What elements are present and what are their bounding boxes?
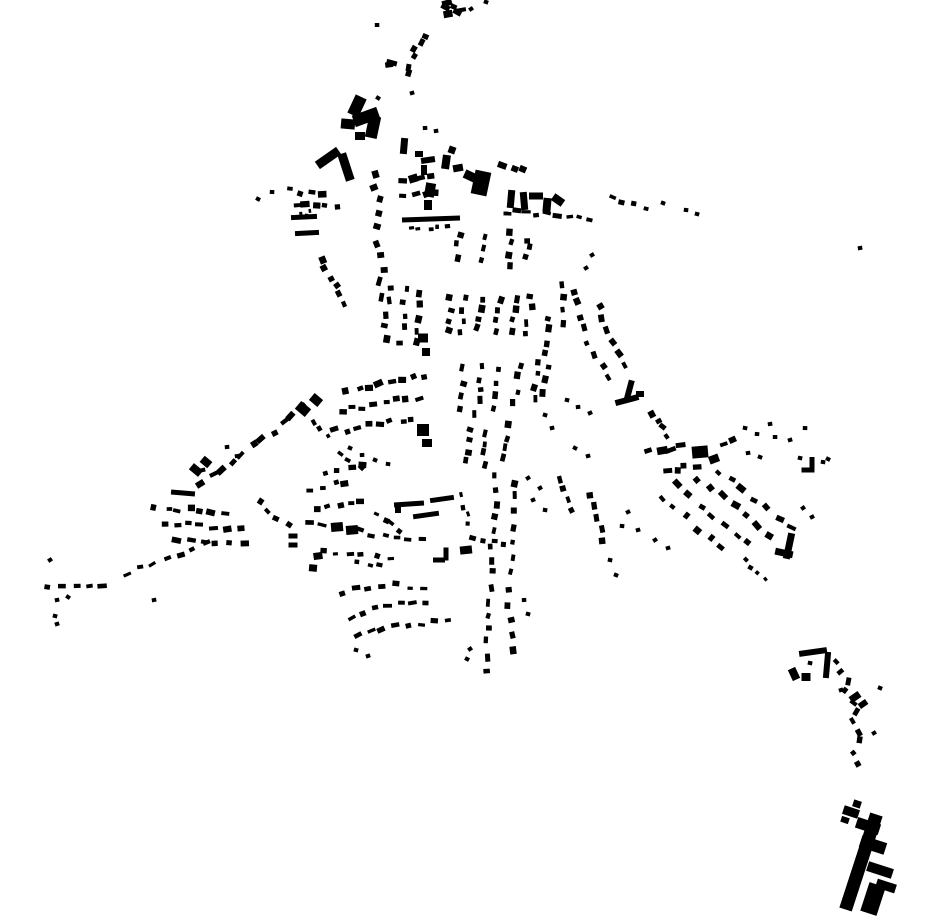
building-footprint <box>583 265 589 271</box>
building-footprint <box>576 405 581 409</box>
building-footprint <box>209 526 218 531</box>
building-footprint <box>560 294 567 301</box>
building-footprint <box>399 299 405 305</box>
building-footprint <box>423 126 428 130</box>
building-footprint <box>605 374 612 382</box>
building-footprint <box>466 511 470 517</box>
building-footprint <box>466 521 470 525</box>
building-footprint <box>444 548 449 561</box>
building-footprint <box>355 132 365 140</box>
building-footprint <box>505 251 513 259</box>
building-footprint <box>503 212 511 216</box>
building-footprint <box>478 387 484 392</box>
building-footprint <box>422 439 432 447</box>
building-footprint <box>728 436 737 444</box>
building-footprint <box>488 544 493 550</box>
building-footprint <box>388 379 397 385</box>
building-footprint <box>564 398 569 403</box>
building-footprint <box>858 699 869 709</box>
building-footprint <box>373 223 381 231</box>
building-footprint <box>482 234 487 241</box>
building-footprint <box>459 492 463 497</box>
building-footprint <box>402 323 407 330</box>
building-footprint <box>518 362 524 369</box>
building-footprint <box>195 522 203 526</box>
building-footprint <box>663 433 669 440</box>
building-footprint <box>462 318 466 324</box>
building-footprint <box>586 492 593 499</box>
building-footprint <box>318 255 327 264</box>
building-footprint <box>457 231 465 238</box>
building-footprint <box>480 538 486 544</box>
building-footprint <box>357 385 364 391</box>
building-footprint <box>511 507 517 513</box>
building-footprint <box>411 52 418 59</box>
building-footprint <box>718 490 728 500</box>
building-footprint <box>463 457 469 464</box>
building-footprint <box>321 203 327 208</box>
building-footprint <box>493 487 499 493</box>
building-footprint <box>418 623 425 627</box>
building-footprint <box>693 476 701 484</box>
building-footprint <box>97 583 107 588</box>
building-footprint <box>353 648 358 653</box>
building-footprint <box>415 151 423 157</box>
building-footprint <box>507 262 513 269</box>
building-footprint <box>347 445 353 450</box>
building-footprint <box>500 453 506 462</box>
building-footprint <box>552 213 562 219</box>
building-footprint <box>840 816 849 824</box>
building-footprint <box>341 118 356 129</box>
building-footprint <box>414 315 422 324</box>
building-footprint <box>675 442 685 448</box>
building-footprint <box>636 391 644 397</box>
building-footprint <box>491 527 496 534</box>
building-footprint <box>497 161 508 170</box>
building-footprint <box>466 437 473 443</box>
building-footprint <box>369 401 377 407</box>
building-footprint <box>523 331 528 336</box>
building-footprint <box>533 213 539 218</box>
building-footprint <box>527 243 533 250</box>
building-footprint <box>205 508 215 516</box>
building-footprint <box>383 311 389 319</box>
building-footprint <box>398 377 406 383</box>
building-footprint <box>542 198 551 213</box>
building-footprint <box>320 486 326 490</box>
building-footprint-map <box>0 0 930 924</box>
building-footprint <box>496 367 501 372</box>
building-footprint <box>421 374 427 380</box>
building-footprint <box>660 200 666 205</box>
building-footprint <box>52 613 57 618</box>
building-footprint <box>434 129 439 134</box>
building-footprint <box>596 302 605 310</box>
building-footprint <box>427 173 435 180</box>
building-footprint <box>271 429 279 437</box>
building-footprint <box>613 572 619 577</box>
building-footprint <box>577 314 584 321</box>
building-footprint <box>315 147 341 169</box>
building-footprint <box>599 537 606 544</box>
building-footprint <box>320 264 329 272</box>
building-footprint <box>445 318 452 325</box>
building-footprint <box>494 381 499 386</box>
building-footprint <box>358 407 365 411</box>
building-footprint <box>378 584 386 589</box>
building-footprint <box>533 395 537 402</box>
building-footprint <box>568 507 575 514</box>
building-footprint <box>502 443 507 451</box>
building-footprint <box>295 230 319 236</box>
building-footprint <box>367 533 375 539</box>
map-canvas <box>0 0 930 924</box>
building-footprint <box>586 217 593 222</box>
building-footprint <box>493 317 499 324</box>
building-footprint <box>337 450 344 456</box>
building-footprint <box>680 463 686 469</box>
building-footprint <box>340 480 349 487</box>
building-footprint <box>200 456 213 469</box>
building-footprint <box>371 170 379 179</box>
building-footprint <box>337 152 354 181</box>
building-footprint <box>435 225 439 229</box>
building-footprint <box>514 295 520 304</box>
building-footprint <box>757 454 763 459</box>
building-footprint <box>542 412 548 417</box>
building-footprint <box>512 305 519 313</box>
building-footprint <box>460 505 465 511</box>
building-footprint <box>375 95 381 101</box>
building-footprint <box>559 281 564 288</box>
building-footprint <box>742 426 747 431</box>
building-footprint <box>187 537 196 543</box>
building-footprint <box>809 514 815 520</box>
building-footprint <box>810 457 815 469</box>
building-footprint <box>559 485 566 492</box>
building-footprint <box>308 209 311 213</box>
building-footprint <box>378 293 384 302</box>
building-footprint <box>398 601 405 605</box>
building-footprint <box>47 557 53 563</box>
building-footprint <box>510 399 515 406</box>
building-footprint <box>800 505 806 511</box>
building-footprint <box>333 282 341 290</box>
building-footprint <box>352 585 361 591</box>
building-footprint <box>504 435 510 443</box>
building-footprint <box>365 421 372 427</box>
building-footprint <box>530 497 536 502</box>
building-footprint <box>716 543 725 551</box>
building-footprint <box>694 212 699 217</box>
building-footprint <box>802 673 811 681</box>
building-footprint <box>413 338 421 347</box>
building-footprint <box>408 417 414 423</box>
building-footprint <box>430 189 439 196</box>
building-footprint <box>489 557 494 564</box>
building-footprint <box>424 200 432 210</box>
building-footprint <box>698 503 706 510</box>
building-footprint <box>339 409 347 415</box>
building-footprint <box>484 636 489 643</box>
building-footprint <box>369 183 378 192</box>
building-footprint <box>417 175 425 181</box>
building-footprint <box>400 138 408 155</box>
building-footprint <box>755 432 760 436</box>
building-footprint <box>402 215 460 222</box>
building-footprint <box>348 405 355 409</box>
building-footprint <box>614 348 624 358</box>
building-footprint <box>413 511 439 520</box>
building-footprint <box>587 410 593 415</box>
building-footprint <box>44 584 50 590</box>
building-footprint <box>509 316 515 322</box>
building-footprint <box>375 23 380 27</box>
building-footprint <box>334 468 339 473</box>
building-footprint <box>448 146 457 155</box>
building-footprint <box>504 420 512 428</box>
building-footprint <box>849 717 856 725</box>
building-footprint <box>860 882 885 916</box>
building-footprint <box>786 524 796 532</box>
building-footprint <box>573 297 582 306</box>
building-footprint <box>750 497 758 504</box>
building-footprint <box>576 215 582 220</box>
building-footprint <box>375 210 383 217</box>
building-footprint <box>162 521 169 526</box>
building-footprint <box>381 323 389 329</box>
building-footprint <box>367 627 376 633</box>
building-footprint <box>482 429 488 437</box>
building-footprint <box>526 293 533 299</box>
building-footprint <box>599 525 605 533</box>
building-footprint <box>58 584 66 589</box>
building-footprint <box>416 300 423 307</box>
building-footprint <box>512 207 521 213</box>
building-footprint <box>478 257 484 263</box>
building-footprint <box>459 307 464 314</box>
building-footprint <box>507 617 515 624</box>
building-footprint <box>123 571 132 577</box>
building-footprint <box>419 537 426 541</box>
building-footprint <box>480 297 485 303</box>
building-footprint <box>510 539 515 544</box>
building-footprint <box>174 523 181 528</box>
building-footprint <box>384 400 390 404</box>
building-footprint <box>715 469 722 476</box>
building-footprint <box>372 457 378 462</box>
building-footprint <box>445 326 453 334</box>
building-footprint <box>684 208 689 212</box>
building-footprint <box>241 540 250 546</box>
building-footprint <box>383 533 390 538</box>
building-footprint <box>675 467 681 474</box>
building-footprint <box>86 584 93 589</box>
building-footprint <box>584 340 590 346</box>
building-footprint <box>644 447 653 454</box>
building-footprint <box>560 320 566 328</box>
building-footprint <box>565 496 571 503</box>
building-footprint <box>421 156 436 164</box>
building-footprint <box>522 598 527 602</box>
building-footprint <box>223 525 232 533</box>
building-footprint <box>485 653 490 661</box>
building-footprint <box>311 419 317 426</box>
building-footprint <box>877 685 883 690</box>
building-footprint <box>706 483 715 492</box>
building-footprint <box>445 224 451 229</box>
building-footprint <box>188 546 195 552</box>
building-footprint <box>522 253 529 260</box>
building-footprint <box>483 0 489 5</box>
building-footprint <box>225 445 230 449</box>
building-footprint <box>402 395 409 402</box>
building-footprint <box>316 425 323 432</box>
building-footprint <box>852 799 862 808</box>
building-footprint <box>464 656 470 662</box>
building-footprint <box>398 178 407 184</box>
building-footprint <box>415 227 420 231</box>
building-footprint <box>509 327 516 335</box>
building-footprint <box>441 155 451 170</box>
building-footprint <box>167 507 173 511</box>
building-footprint <box>692 445 709 458</box>
building-footprint <box>148 561 156 568</box>
building-footprint <box>477 396 482 404</box>
building-footprint <box>399 194 406 199</box>
building-footprint <box>404 537 412 541</box>
building-footprint <box>373 240 381 249</box>
building-footprint <box>264 508 271 515</box>
building-footprint <box>421 165 427 175</box>
building-footprint <box>408 173 419 183</box>
building-footprint <box>510 524 516 532</box>
building-footprint <box>391 622 400 628</box>
building-footprint <box>459 363 465 371</box>
building-footprint <box>486 599 490 607</box>
building-footprint <box>483 441 487 447</box>
building-footprint <box>335 289 343 297</box>
building-footprint <box>417 424 429 436</box>
building-footprint <box>374 553 381 560</box>
building-footprint <box>465 449 472 456</box>
building-footprint <box>454 254 461 262</box>
building-footprint <box>348 501 354 505</box>
building-footprint <box>137 564 144 569</box>
building-footprint <box>297 190 304 197</box>
building-footprint <box>482 461 488 469</box>
building-footprint <box>353 425 362 431</box>
building-footprint <box>383 604 392 608</box>
building-footprint <box>320 548 327 554</box>
building-footprint <box>545 324 552 333</box>
building-footprint <box>401 419 407 424</box>
building-footprint <box>492 472 496 478</box>
building-footprint <box>708 454 720 465</box>
building-footprint <box>329 425 339 432</box>
building-footprint <box>529 193 543 200</box>
building-footprint <box>305 520 314 525</box>
building-footprint <box>692 525 702 535</box>
building-footprint <box>348 464 356 470</box>
building-footprint <box>408 600 417 605</box>
building-footprint <box>416 290 423 298</box>
building-footprint <box>544 340 550 347</box>
building-footprint <box>788 667 800 681</box>
building-footprint <box>728 476 736 483</box>
building-footprint <box>396 341 403 346</box>
building-footprint <box>185 521 192 526</box>
building-footprint <box>598 314 605 322</box>
building-footprint <box>747 565 753 571</box>
building-footprint <box>693 464 702 470</box>
building-footprint <box>377 252 384 258</box>
building-footprint <box>485 613 491 619</box>
building-footprint <box>734 532 742 540</box>
building-footprint <box>505 587 512 593</box>
building-footprint <box>305 214 309 218</box>
building-footprint <box>317 522 327 527</box>
building-footprint <box>551 193 565 206</box>
building-footprint <box>514 371 521 379</box>
building-footprint <box>356 499 364 505</box>
building-footprint <box>454 240 459 246</box>
building-footprint <box>195 479 205 489</box>
building-footprint <box>300 201 310 208</box>
building-footprint <box>407 586 412 590</box>
building-footprint <box>374 512 380 517</box>
building-footprint <box>501 542 506 548</box>
building-footprint <box>478 304 486 313</box>
building-footprint <box>237 525 245 531</box>
building-footprint <box>409 226 414 230</box>
building-footprint <box>412 190 421 197</box>
building-footprint <box>752 520 763 531</box>
building-footprint <box>394 536 401 540</box>
building-footprint <box>787 437 792 442</box>
building-footprint <box>683 489 693 498</box>
building-footprint <box>308 189 315 194</box>
building-footprint <box>200 468 205 473</box>
building-footprint <box>535 371 540 376</box>
building-footprint <box>492 539 498 544</box>
building-footprint <box>621 361 628 369</box>
building-footprint <box>257 497 265 505</box>
building-footprint <box>763 577 768 582</box>
building-footprint <box>871 730 877 736</box>
building-footprint <box>376 276 383 286</box>
building-footprint <box>764 531 774 540</box>
building-footprint <box>647 410 656 419</box>
building-footprint <box>481 244 486 251</box>
building-footprint <box>409 90 414 95</box>
building-footprint <box>494 501 501 509</box>
building-footprint <box>543 508 548 513</box>
building-footprint <box>866 861 894 879</box>
building-footprint <box>151 598 156 603</box>
building-footprint <box>410 373 417 380</box>
building-footprint <box>518 165 527 174</box>
building-footprint <box>422 601 428 606</box>
building-footprint <box>720 441 728 447</box>
building-footprint <box>347 528 353 534</box>
building-footprint <box>392 580 400 586</box>
building-footprint <box>721 521 730 530</box>
building-footprint <box>608 337 617 346</box>
building-footprint <box>493 328 499 336</box>
building-footprint <box>396 528 403 535</box>
